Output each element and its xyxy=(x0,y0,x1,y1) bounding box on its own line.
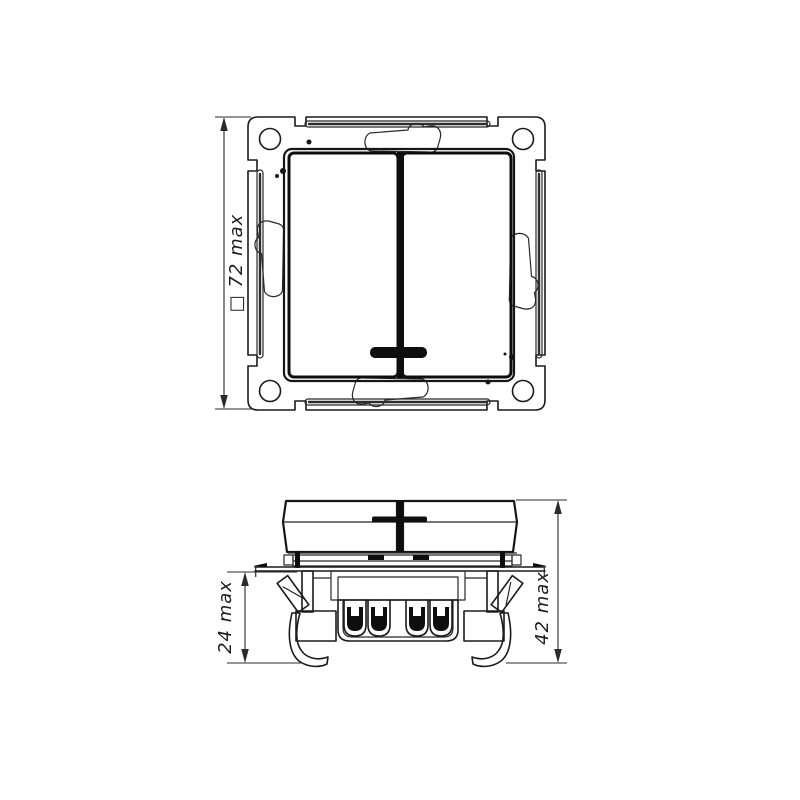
technical-drawing: □ 72 max xyxy=(0,0,800,800)
strip-latch xyxy=(368,555,384,560)
arrow-up xyxy=(220,117,228,131)
key-divider xyxy=(397,500,403,553)
strip-latch xyxy=(413,555,429,560)
strip-end-tab xyxy=(284,555,293,565)
speckle xyxy=(486,380,491,385)
fixing-slot-top xyxy=(305,121,490,127)
screw-slot xyxy=(437,607,445,616)
dimension-mounting-depth: 24 max xyxy=(215,572,303,663)
speckle xyxy=(509,354,515,360)
dimension-label-total-depth: 42 max xyxy=(532,571,553,645)
key-right-profile xyxy=(403,501,517,552)
speckle xyxy=(307,140,312,145)
dimension-total-depth: 42 max xyxy=(506,500,567,663)
dimension-label-mounting-depth: 24 max xyxy=(215,580,236,654)
screw-slot xyxy=(413,607,421,616)
screw-hole xyxy=(260,381,281,402)
arrow-up xyxy=(554,500,562,514)
terminal xyxy=(344,600,366,636)
clamp-box-right xyxy=(464,611,504,641)
fixing-slot-right xyxy=(536,170,542,358)
front-view: □ 72 max xyxy=(215,117,545,410)
speckle xyxy=(275,174,279,178)
side-view: 24 max 42 max xyxy=(215,500,567,666)
screw-slot xyxy=(375,607,383,616)
terminals xyxy=(344,600,452,636)
strip-end-tab xyxy=(512,555,521,565)
frame-strip xyxy=(284,551,521,568)
screw-hole xyxy=(260,129,281,150)
indicator-window xyxy=(370,347,427,358)
drawing-page: □ 72 max xyxy=(0,0,800,800)
dimension-front-size: □ 72 max xyxy=(215,117,251,409)
arrow-down xyxy=(241,649,249,663)
housing-upper xyxy=(331,571,465,600)
arrow-down xyxy=(220,395,228,409)
key-left-profile xyxy=(283,501,397,552)
screw-hole xyxy=(513,381,534,402)
foot-right xyxy=(472,613,511,666)
terminal xyxy=(368,600,390,636)
mechanism-body xyxy=(296,571,504,641)
spreader-claws xyxy=(277,576,523,613)
claw-right xyxy=(491,576,523,613)
clamp-box-left xyxy=(296,611,336,641)
speckle xyxy=(504,353,507,356)
speckle xyxy=(280,168,286,174)
terminal xyxy=(406,600,428,636)
arrow-up xyxy=(241,572,249,586)
fixing-slot-bottom xyxy=(305,399,490,405)
arrow-down xyxy=(554,649,562,663)
claw-left xyxy=(277,576,309,613)
dimension-label-front-size: □ 72 max xyxy=(226,214,247,313)
screw-slot xyxy=(351,607,359,616)
foot-left xyxy=(289,613,328,666)
screw-hole xyxy=(513,129,534,150)
rocker-right xyxy=(402,153,511,377)
terminal xyxy=(430,600,452,636)
indicator-bar xyxy=(372,517,427,523)
housing-upper-inner xyxy=(338,577,458,600)
fixing-pin xyxy=(500,551,505,568)
rocker-left xyxy=(289,153,398,377)
rocker-divider xyxy=(397,152,404,378)
fixing-pin xyxy=(295,551,300,568)
